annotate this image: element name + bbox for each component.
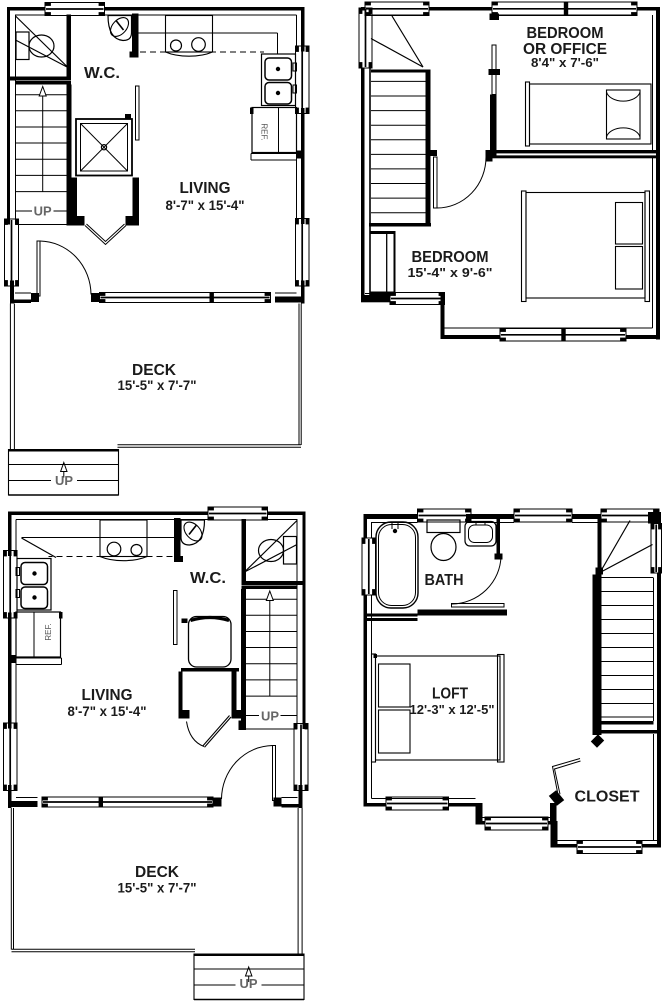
svg-text:UP: UP (240, 976, 258, 991)
svg-text:15'-4" x 9'-6": 15'-4" x 9'-6" (408, 265, 493, 280)
svg-text:REF.: REF. (260, 123, 269, 140)
svg-text:UP: UP (261, 709, 279, 724)
svg-text:UP: UP (34, 204, 52, 219)
svg-text:LIVING: LIVING (82, 687, 133, 704)
svg-text:UP: UP (55, 473, 73, 488)
svg-text:8'-7" x 15'-4": 8'-7" x 15'-4" (68, 704, 147, 719)
svg-text:DECK: DECK (135, 864, 179, 881)
svg-text:REF.: REF. (44, 623, 53, 640)
svg-text:DECK: DECK (132, 362, 176, 379)
svg-text:W.C.: W.C. (190, 570, 226, 587)
svg-text:BEDROOM: BEDROOM (412, 249, 489, 266)
svg-text:LIVING: LIVING (180, 180, 231, 197)
svg-text:W.C.: W.C. (84, 65, 120, 82)
svg-text:LOFT: LOFT (432, 686, 468, 703)
svg-text:CLOSET: CLOSET (575, 789, 641, 806)
svg-text:15'-5" x 7'-7": 15'-5" x 7'-7" (118, 378, 197, 393)
svg-text:8'4" x 7'-6": 8'4" x 7'-6" (531, 55, 599, 70)
svg-text:BEDROOM: BEDROOM (527, 25, 604, 42)
svg-text:12'-3" x 12'-5": 12'-3" x 12'-5" (410, 702, 495, 717)
svg-text:15'-5" x 7'-7": 15'-5" x 7'-7" (118, 881, 197, 896)
svg-text:8'-7" x 15'-4": 8'-7" x 15'-4" (166, 198, 245, 213)
svg-text:BATH: BATH (425, 572, 464, 589)
